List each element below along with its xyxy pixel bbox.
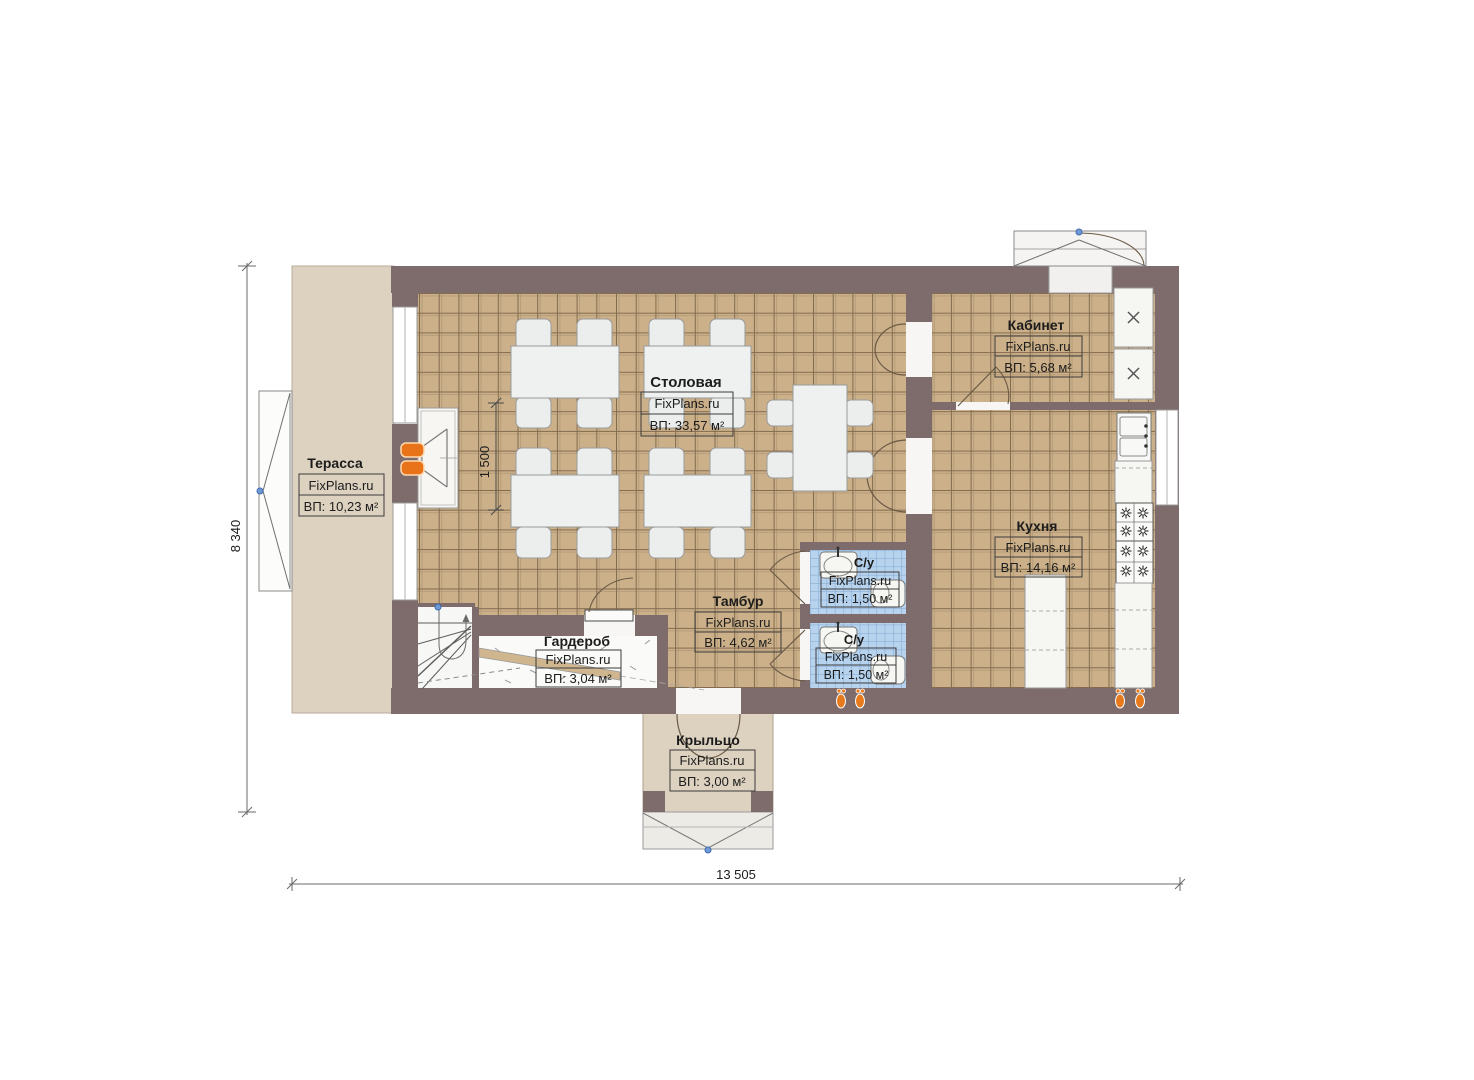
svg-text:ВП: 1,50 м²: ВП: 1,50 м² — [824, 668, 889, 682]
svg-text:FixPlans.ru: FixPlans.ru — [654, 396, 719, 411]
svg-text:FixPlans.ru: FixPlans.ru — [705, 615, 770, 630]
svg-text:ВП: 3,04 м²: ВП: 3,04 м² — [544, 671, 612, 686]
svg-text:Крыльцо: Крыльцо — [676, 732, 740, 748]
svg-text:8 340: 8 340 — [228, 520, 243, 553]
svg-text:13 505: 13 505 — [716, 867, 756, 882]
svg-text:Кухня: Кухня — [1017, 518, 1058, 534]
svg-text:FixPlans.ru: FixPlans.ru — [545, 652, 610, 667]
svg-text:ВП: 33,57 м²: ВП: 33,57 м² — [650, 418, 725, 433]
svg-text:FixPlans.ru: FixPlans.ru — [679, 753, 744, 768]
svg-text:ВП: 10,23 м²: ВП: 10,23 м² — [304, 499, 379, 514]
svg-text:FixPlans.ru: FixPlans.ru — [1005, 540, 1070, 555]
svg-text:Терасса: Терасса — [307, 455, 363, 471]
svg-text:ВП: 1,50 м²: ВП: 1,50 м² — [828, 592, 893, 606]
svg-text:Гардероб: Гардероб — [544, 633, 611, 649]
svg-text:С/у: С/у — [844, 632, 865, 647]
svg-text:FixPlans.ru: FixPlans.ru — [829, 574, 892, 588]
svg-text:ВП: 4,62 м²: ВП: 4,62 м² — [704, 635, 772, 650]
svg-text:С/у: С/у — [854, 555, 875, 570]
svg-text:1 500: 1 500 — [477, 446, 492, 479]
svg-text:FixPlans.ru: FixPlans.ru — [1005, 339, 1070, 354]
svg-text:FixPlans.ru: FixPlans.ru — [308, 478, 373, 493]
svg-text:ВП: 14,16 м²: ВП: 14,16 м² — [1001, 560, 1076, 575]
svg-text:Кабинет: Кабинет — [1008, 317, 1065, 333]
svg-text:Тамбур: Тамбур — [713, 593, 764, 609]
svg-text:ВП: 5,68 м²: ВП: 5,68 м² — [1004, 360, 1072, 375]
svg-text:ВП: 3,00 м²: ВП: 3,00 м² — [678, 774, 746, 789]
svg-text:FixPlans.ru: FixPlans.ru — [825, 650, 888, 664]
svg-text:Столовая: Столовая — [650, 374, 721, 391]
